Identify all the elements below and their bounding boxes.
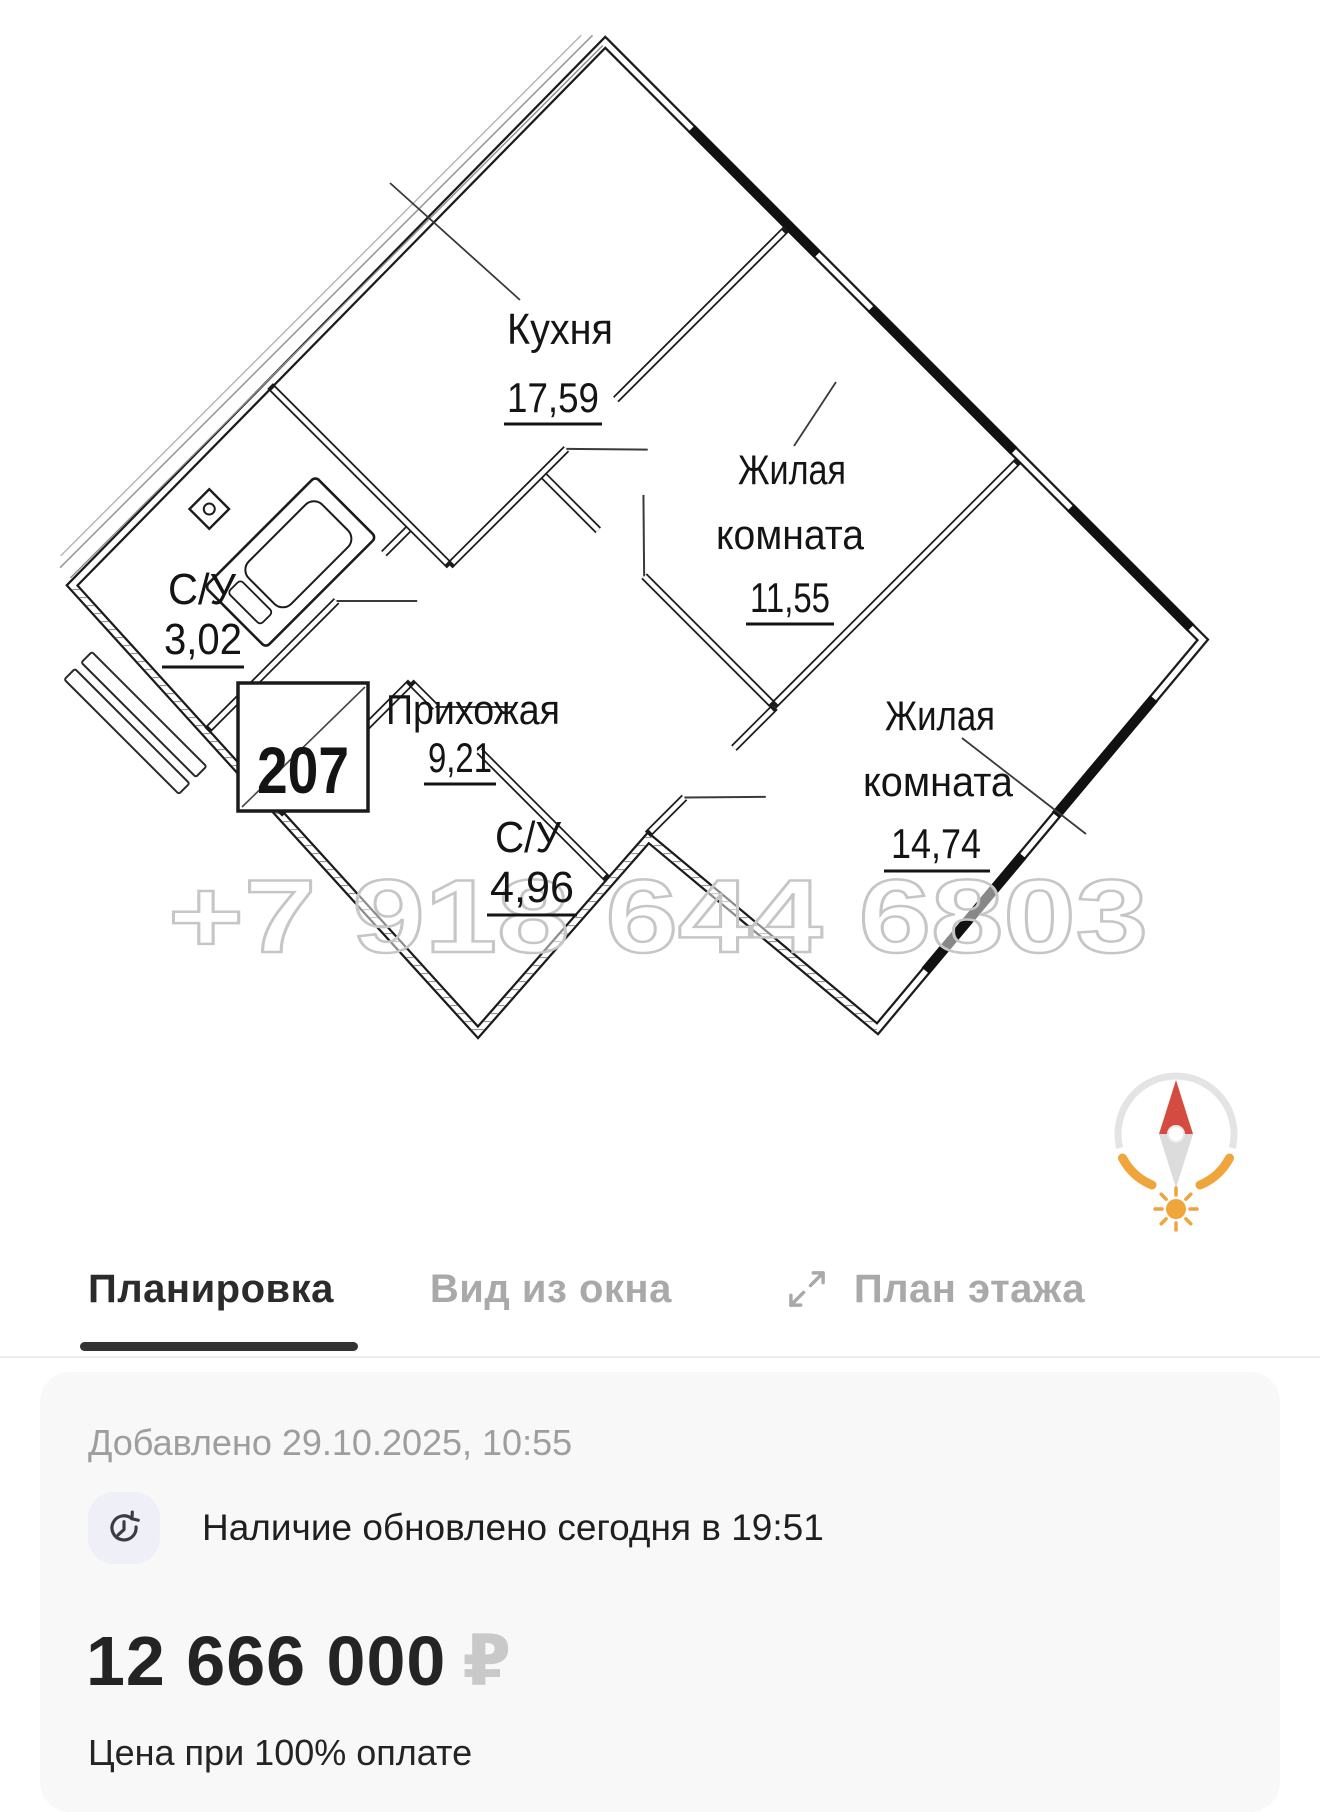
svg-text:С/У: С/У: [168, 565, 237, 614]
offer-card: Добавлено 29.10.2025, 10:55 Наличие обно…: [40, 1372, 1280, 1812]
tab-floor-plan[interactable]: План этажа: [784, 1266, 1085, 1312]
tab-window-view[interactable]: Вид из окна: [430, 1267, 672, 1312]
unit-number-box: 207: [238, 683, 368, 811]
svg-text:Жилая: Жилая: [885, 692, 995, 739]
price-amount: 12 666 000: [86, 1621, 446, 1701]
active-tab-underline: [80, 1342, 358, 1351]
tab-floor-plan-label: План этажа: [854, 1267, 1085, 1312]
tab-layout[interactable]: Планировка: [88, 1267, 334, 1312]
svg-text:Прихожая: Прихожая: [386, 686, 560, 733]
svg-text:3,02: 3,02: [164, 615, 242, 664]
sun-icon: [1155, 1188, 1197, 1230]
svg-text:207: 207: [257, 733, 349, 807]
svg-text:комната: комната: [716, 511, 865, 558]
ruble-sign: ₽: [462, 1620, 512, 1702]
svg-text:Кухня: Кухня: [507, 305, 613, 354]
price: 12 666 000 ₽: [86, 1620, 512, 1702]
svg-text:комната: комната: [863, 758, 1014, 805]
svg-text:17,59: 17,59: [507, 374, 599, 421]
watermark: +7 918 644 6803: [168, 859, 1148, 975]
availability-status: Наличие обновлено сегодня в 19:51: [202, 1507, 824, 1549]
room-label-bathroom1: С/У 3,02: [162, 565, 244, 667]
svg-text:С/У: С/У: [495, 813, 562, 862]
svg-text:11,55: 11,55: [750, 574, 830, 621]
tabs-divider: [0, 1356, 1320, 1358]
price-note: Цена при 100% оплате: [88, 1732, 472, 1774]
added-date: Добавлено 29.10.2025, 10:55: [88, 1422, 572, 1464]
expand-icon: [784, 1266, 830, 1312]
clock-refresh-icon: [103, 1507, 145, 1549]
svg-text:4,96: 4,96: [490, 863, 574, 912]
svg-text:9,21: 9,21: [428, 734, 492, 781]
availability-row: Наличие обновлено сегодня в 19:51: [88, 1492, 824, 1564]
media-tabs: Планировка Вид из окна План этажа: [88, 1266, 1085, 1312]
svg-text:Жилая: Жилая: [738, 446, 846, 493]
compass-icon: [1118, 1076, 1234, 1230]
svg-text:14,74: 14,74: [891, 820, 981, 867]
floor-plan-image[interactable]: +7 918 644 6803 Кухня 17,59 Жилая комнат…: [0, 0, 1320, 1250]
clock-badge: [88, 1492, 160, 1564]
